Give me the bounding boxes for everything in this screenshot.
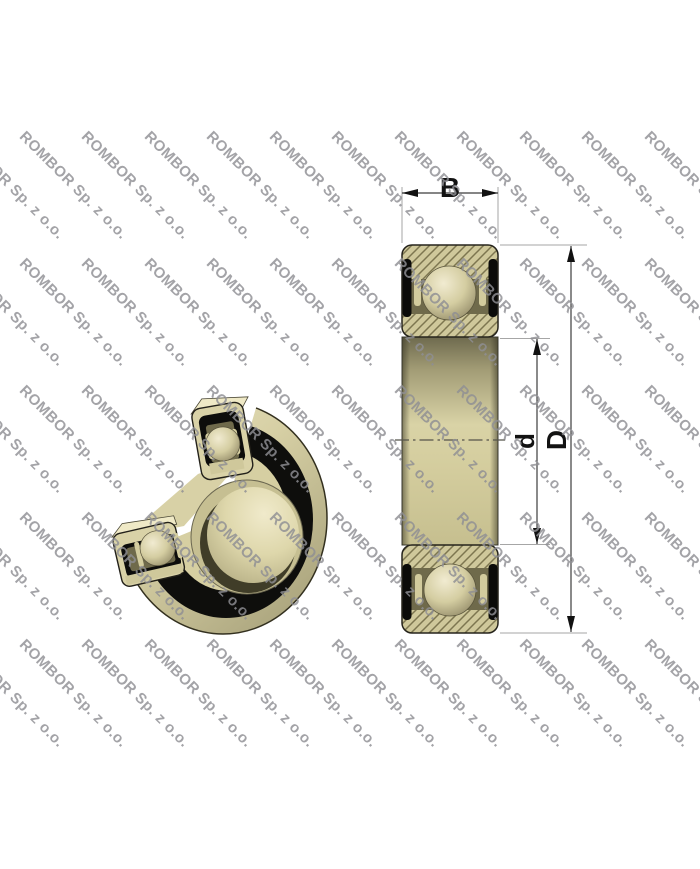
- dimension-D: D: [541, 246, 575, 632]
- dim-label-d: d: [510, 433, 540, 449]
- arrow-up-icon: [533, 339, 541, 355]
- bore-face: [402, 337, 498, 545]
- bearing-3d-view: [66, 362, 327, 634]
- arrow-left-icon: [402, 189, 418, 197]
- dimension-B: B: [402, 172, 498, 203]
- dim-label-B: B: [440, 172, 460, 203]
- seal-top-right: [489, 259, 498, 317]
- dimension-d: d: [510, 339, 541, 544]
- bearing-section-view: B D d: [395, 172, 587, 633]
- bearing-product-image: B D d ROMBOR Sp. z o.o.ROMBOR Sp. z o.o.…: [0, 0, 700, 869]
- dim-label-D: D: [541, 430, 572, 450]
- arrow-up-icon: [567, 246, 575, 262]
- bore-interior: [191, 480, 303, 594]
- arrow-down-icon: [533, 528, 541, 544]
- arrow-down-icon: [567, 616, 575, 632]
- arrow-right-icon: [482, 189, 498, 197]
- seal-top-left: [403, 259, 412, 317]
- seal-bottom-left: [403, 564, 412, 620]
- seal-bottom-right: [489, 564, 498, 620]
- ring-section-bottom: [402, 545, 498, 633]
- bearing-diagram-svg: B D d: [0, 0, 700, 869]
- ball-section-top: [422, 266, 476, 320]
- ball-section-bottom: [424, 564, 476, 616]
- ring-section-top: [402, 245, 498, 337]
